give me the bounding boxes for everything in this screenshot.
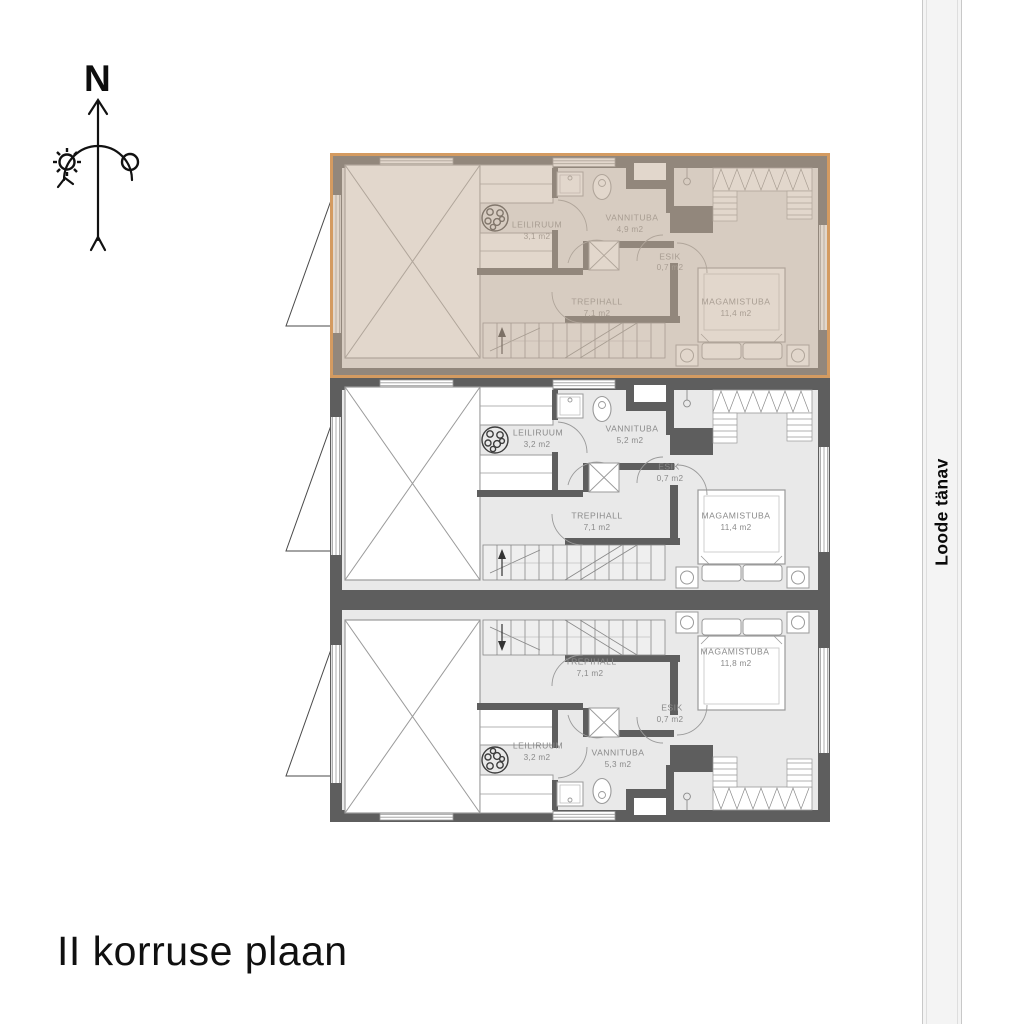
room-label-trepihall: TREPIHALL	[571, 512, 622, 521]
room-label-esik: ESIK	[661, 704, 683, 713]
room-area: 0,7 m2	[657, 475, 684, 483]
street-name-label: Loode tänav	[932, 458, 953, 565]
room-label-trepihall: TREPIHALL	[565, 658, 616, 667]
roof-outline-lines	[280, 150, 334, 830]
floor-plan-unit-bottom	[330, 600, 830, 822]
room-area: 3,2 m2	[524, 754, 551, 762]
compass-icon	[40, 92, 170, 252]
room-label-leiliruum: LEILIRUUM	[513, 742, 563, 751]
room-label-leiliruum: LEILIRUUM	[513, 429, 563, 438]
room-area: 5,2 m2	[617, 437, 644, 445]
street-edge-line	[957, 0, 958, 1024]
room-area: 7,1 m2	[584, 524, 611, 532]
room-label-magamistuba: MAGAMISTUBA	[700, 648, 769, 657]
page-title: II korruse plaan	[57, 928, 348, 975]
highlighted-unit-overlay	[330, 153, 830, 378]
room-area: 11,8 m2	[720, 660, 751, 668]
room-label-esik: ESIK	[658, 463, 680, 472]
street-band: Loode tänav	[922, 0, 962, 1024]
room-area: 11,4 m2	[720, 524, 751, 532]
room-label-vannituba: VANNITUBA	[605, 425, 658, 434]
street-edge-line	[926, 0, 927, 1024]
room-area: 3,2 m2	[524, 441, 551, 449]
room-area: 5,3 m2	[605, 761, 632, 769]
room-area: 0,7 m2	[657, 716, 684, 724]
room-label-vannituba: VANNITUBA	[591, 749, 644, 758]
room-label-magamistuba: MAGAMISTUBA	[701, 512, 770, 521]
floor-plan-unit-middle	[330, 378, 830, 600]
room-area: 7,1 m2	[577, 670, 604, 678]
